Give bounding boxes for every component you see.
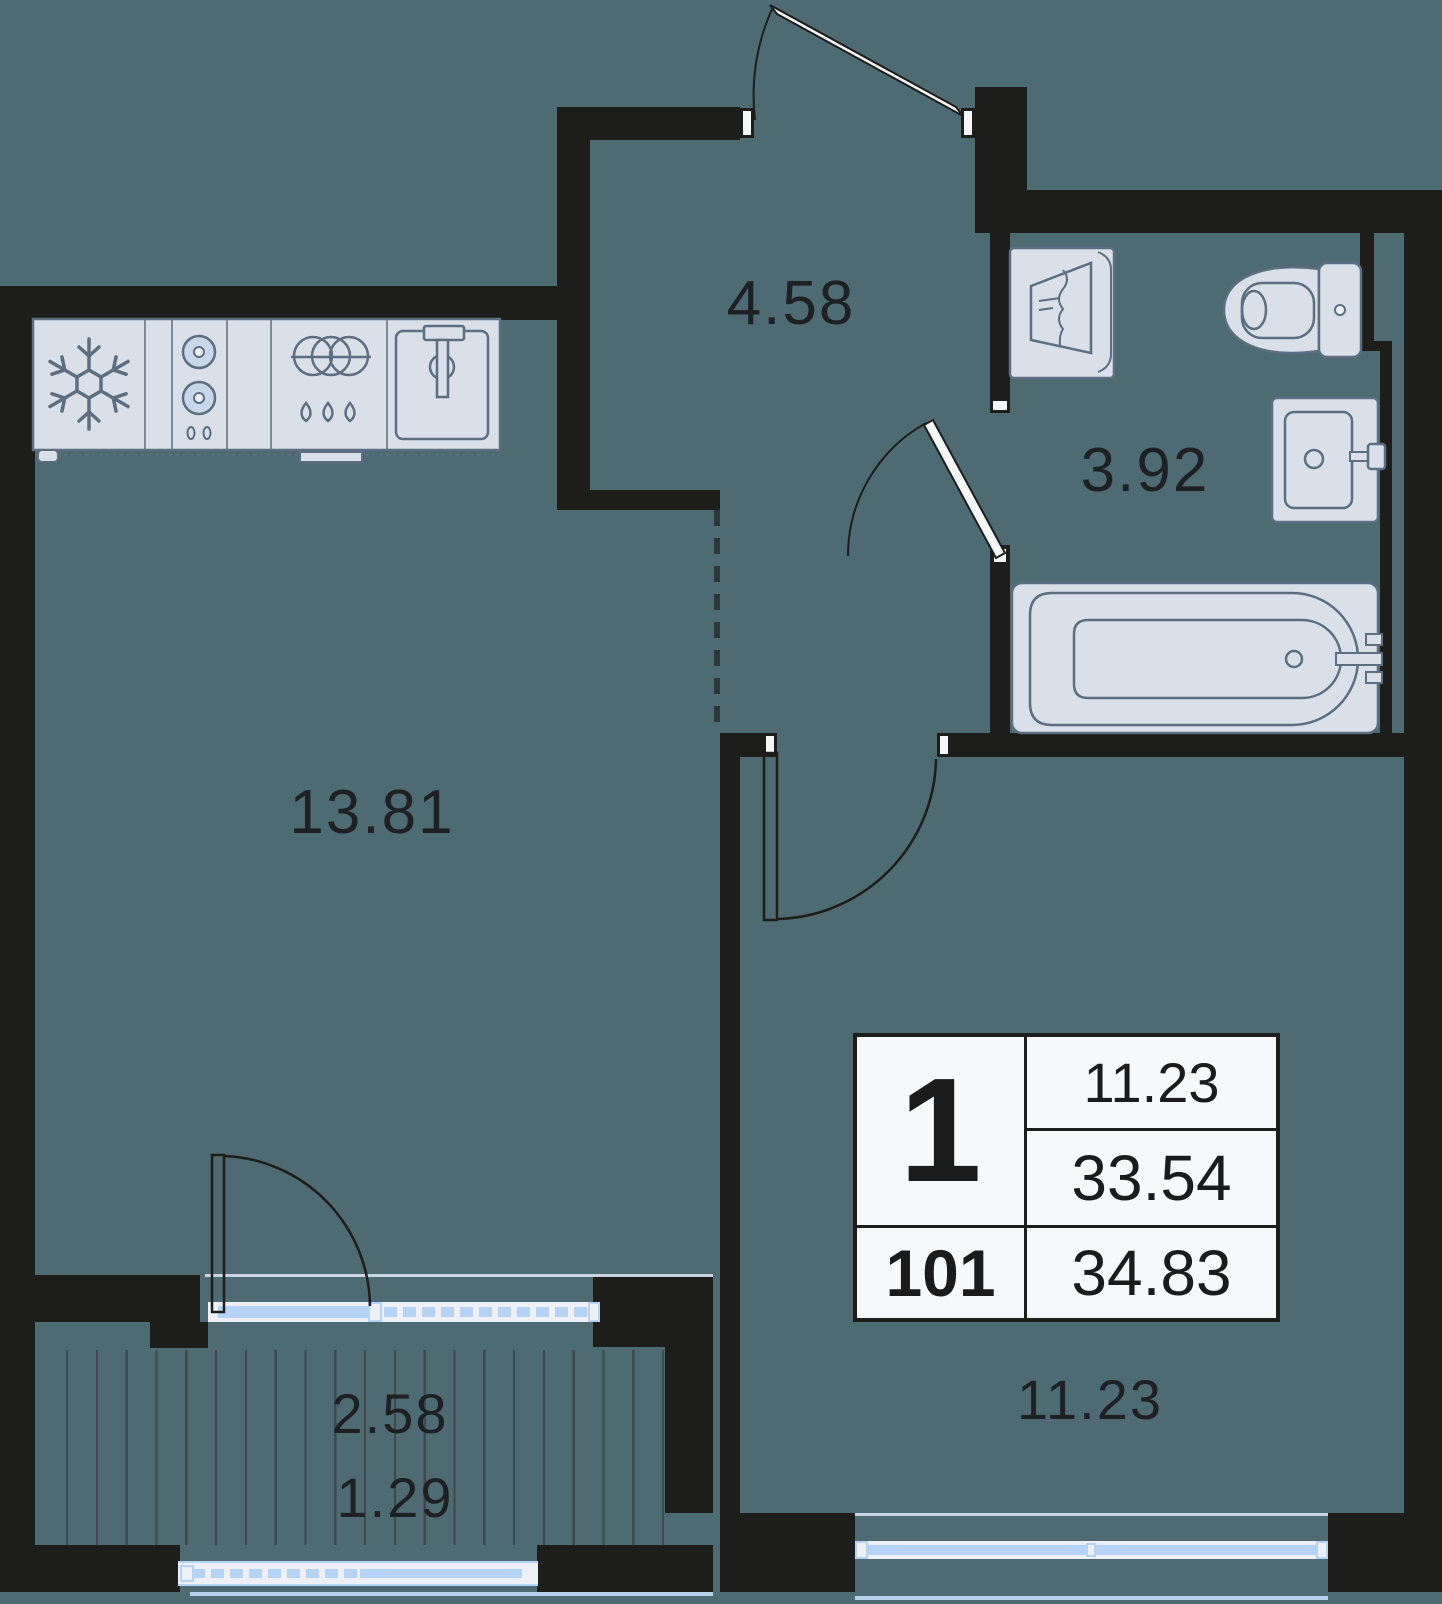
room-area-label-hallway: 4.58 [591,267,991,339]
floor-plan: 4.58 3.92 13.81 11.23 2.58 1.29 1 11.23 … [0,0,1442,1604]
room-area-label-bedroom: 11.23 [890,1366,1290,1432]
room-area-label-balcony-full: 2.58 [190,1381,590,1445]
total-area-cell: 34.83 [1027,1228,1276,1318]
living-area-cell: 11.23 [1027,1037,1276,1128]
room-area-label-balcony-half: 1.29 [195,1465,595,1529]
washing-machine-icon [1010,248,1114,378]
room-count-cell: 1 [857,1037,1024,1225]
bedroom-door-icon [764,753,936,920]
balcony-door-icon [212,1155,370,1312]
room-area-label-kitchen-living: 13.81 [172,776,572,848]
unit-number-cell: 101 [857,1228,1024,1318]
area-without-summer-cell: 33.54 [1027,1131,1276,1225]
bathtub-icon [1012,583,1382,733]
toilet-icon [1224,263,1361,357]
room-area-label-bathroom: 3.92 [1000,434,1290,506]
bathroom-door-icon [848,420,1005,558]
apartment-info-table: 1 11.23 33.54 101 34.83 [853,1033,1280,1322]
entrance-door-icon [754,5,963,120]
